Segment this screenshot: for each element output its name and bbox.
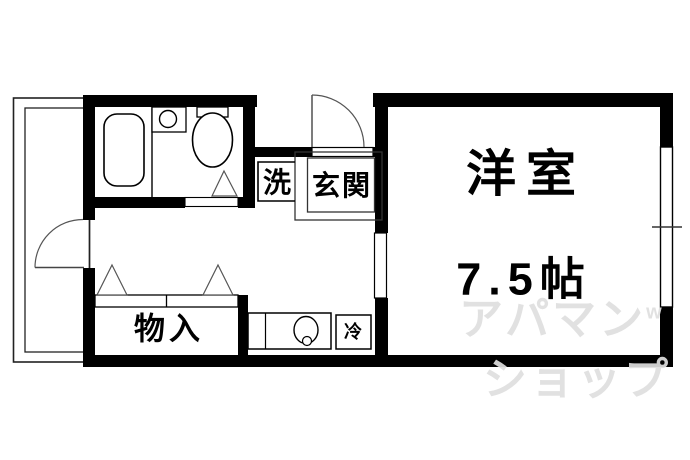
wall-room-left-lower bbox=[375, 298, 388, 358]
western-room-label: 洋室 bbox=[466, 149, 586, 199]
bathtub-icon bbox=[104, 114, 144, 186]
washbasin-icon bbox=[152, 107, 186, 132]
wall-bath-right bbox=[243, 95, 255, 207]
watermark-line2: ショップ bbox=[483, 358, 671, 402]
wall-left-lower bbox=[83, 268, 95, 367]
kitchen-counter bbox=[248, 313, 331, 349]
west-door bbox=[35, 220, 84, 268]
wall-storage-right bbox=[238, 295, 248, 355]
wall-bath-top bbox=[83, 95, 257, 107]
entrance-door-arc bbox=[312, 95, 364, 147]
entrance-door bbox=[312, 95, 373, 157]
floor-plan: 洋室 7.5帖 玄関 洗 物入 冷 アパマンw ショップ bbox=[0, 0, 690, 460]
wall-bath-bottom-left bbox=[95, 197, 185, 208]
watermark-line1: アパマンw bbox=[459, 298, 662, 342]
storage-doors bbox=[95, 265, 238, 307]
wall-room-right-upper bbox=[660, 93, 673, 147]
wall-bath-bottom-right bbox=[238, 197, 255, 208]
watermark-text1: アパマン bbox=[459, 295, 646, 344]
bathroom-door-threshold bbox=[185, 198, 238, 207]
watermark-sup: w bbox=[646, 301, 662, 323]
entrance-label: 玄関 bbox=[312, 172, 372, 200]
west-door-arc bbox=[35, 220, 83, 268]
wall-left-upper bbox=[83, 95, 95, 220]
toilet-icon bbox=[193, 107, 233, 167]
storage-door-triangle-icon bbox=[97, 265, 127, 295]
bathroom-door-triangle-icon bbox=[212, 171, 237, 196]
bathroom bbox=[104, 107, 238, 207]
fridge-label: 冷 bbox=[344, 323, 362, 341]
storage-label: 物入 bbox=[134, 314, 204, 345]
porch-outline bbox=[14, 98, 90, 362]
washer-label: 洗 bbox=[263, 169, 291, 197]
window bbox=[652, 147, 682, 307]
storage-door-triangle-icon bbox=[203, 265, 233, 295]
wall-room-top bbox=[373, 93, 673, 107]
sliding-door bbox=[375, 233, 387, 298]
watermark-text2: ショップ bbox=[483, 355, 671, 404]
sink-drain-icon bbox=[303, 337, 312, 346]
